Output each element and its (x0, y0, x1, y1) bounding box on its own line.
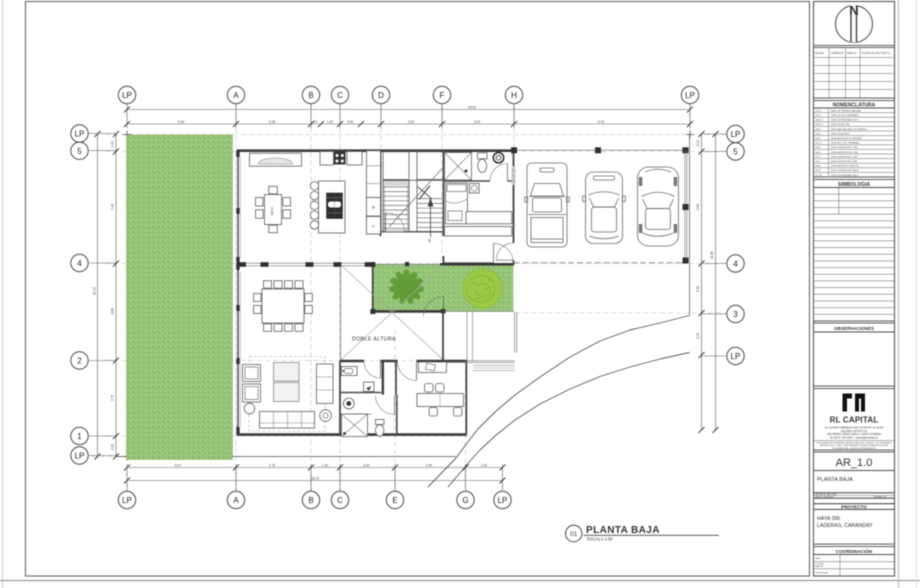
svg-text:MESA: MESA (270, 207, 274, 216)
svg-text:.70: .70 (313, 120, 318, 124)
svg-text:LP: LP (498, 496, 508, 505)
svg-text:A: A (233, 496, 239, 505)
svg-text:1: 1 (77, 432, 82, 441)
svg-text:11.80: 11.80 (710, 251, 714, 259)
svg-text:PLANTA BAJA: PLANTA BAJA (817, 477, 853, 483)
svg-text:6.80: 6.80 (111, 308, 115, 314)
svg-text:H: H (511, 91, 517, 100)
svg-text:5.43: 5.43 (178, 120, 184, 124)
svg-text:1.40: 1.40 (327, 120, 333, 124)
svg-text:NIVEL NATURAL REAL DE TERRENO: NIVEL NATURAL REAL DE TERRENO (831, 128, 867, 131)
svg-text:C: C (337, 496, 343, 505)
svg-text:COORDINACIÓN: COORDINACIÓN (836, 547, 873, 554)
svg-text:3.05: 3.05 (363, 463, 369, 467)
svg-text:LP: LP (685, 91, 695, 100)
svg-text:DIBUJO: DIBUJO (847, 51, 857, 55)
svg-text:0.92: 0.92 (696, 140, 700, 146)
svg-text:5.40: 5.40 (111, 204, 115, 210)
svg-text:28.04: 28.04 (468, 105, 476, 109)
svg-text:1.00: 1.00 (111, 444, 115, 450)
svg-text:B: B (308, 496, 313, 505)
svg-text:NIVEL INTERIOR DE PISETA: NIVEL INTERIOR DE PISETA (831, 169, 859, 172)
svg-text:N.A.L.: N.A.L. (816, 146, 822, 149)
svg-text:NIVEL DETERMINADO ALTO: NIVEL DETERMINADO ALTO (831, 119, 859, 122)
svg-text:V.B.L.: V.B.L. (816, 161, 822, 163)
svg-text:5.47: 5.47 (175, 463, 181, 467)
svg-text:NIVEL DE AZOTEA: NIVEL DE AZOTEA (831, 123, 850, 126)
svg-text:4.05: 4.05 (347, 120, 353, 124)
svg-text:NIVEL DE ACCESO: NIVEL DE ACCESO (831, 132, 850, 135)
svg-text:PLANO DE PROYECTO: PLANO DE PROYECTO (862, 51, 890, 55)
svg-text:A.A.B.: A.A.B. (816, 165, 822, 168)
svg-text:N: N (849, 3, 858, 18)
svg-text:5: 5 (733, 148, 738, 157)
svg-text:M.B.T.: M.B.T. (816, 129, 822, 131)
svg-text:E: E (392, 496, 397, 505)
svg-text:2.50: 2.50 (408, 120, 414, 124)
svg-text:N.C.L.: N.C.L. (816, 156, 822, 158)
svg-text:NIVEL DE PISO TERMINADO: NIVEL DE PISO TERMINADO (831, 114, 859, 117)
svg-text:6.76: 6.76 (598, 120, 604, 124)
svg-text:S: S (428, 238, 431, 243)
svg-text:LP: LP (122, 91, 132, 100)
svg-text:PROPIEDAD: PROPIEDAD (815, 572, 828, 575)
svg-text:DOBLE ALTURA: DOBLE ALTURA (352, 337, 396, 343)
svg-text:0.92: 0.92 (111, 141, 115, 147)
svg-text:REPRODUCIDO TOTAL O PARCIALMEN: REPRODUCIDO TOTAL O PARCIALMENTE SIN AUT… (820, 444, 889, 447)
svg-text:N.P.T.1: N.P.T.1 (816, 143, 823, 145)
svg-text:G: G (462, 496, 468, 505)
svg-text:NIVEL ANTERIOR DE TERRENO: NIVEL ANTERIOR DE TERRENO (831, 137, 863, 140)
svg-text:NIVEL DETERMINADO ALTO: NIVEL DETERMINADO ALTO (831, 174, 859, 177)
svg-text:NIVEL DE TERRENO NATURAL: NIVEL DE TERRENO NATURAL (831, 109, 862, 112)
svg-text:F: F (440, 91, 445, 100)
svg-text:JEFE: JEFE (815, 558, 821, 560)
svg-text:SIMBOLOGIA: SIMBOLOGIA (838, 182, 871, 188)
svg-text:HAYA 396: HAYA 396 (817, 516, 840, 522)
svg-text:5.60: 5.60 (696, 204, 700, 210)
svg-text:PROYECTO: AR 1.0380: PROYECTO: AR 1.0380 (815, 493, 838, 496)
svg-text:ESTE PLANO ES PROPIEDAD INTELE: ESTE PLANO ES PROPIEDAD INTELECTUAL DE R… (817, 442, 892, 445)
svg-text:LP: LP (731, 130, 741, 139)
svg-text:3: 3 (733, 310, 738, 319)
svg-text:PROYECTO: PROYECTO (841, 505, 867, 510)
svg-text:10.10: 10.10 (93, 287, 97, 295)
svg-text:DE LA EMPRESA - DERECHOS RESER: DE LA EMPRESA - DERECHOS RESERVADOS (832, 447, 876, 450)
svg-text:ESCALA 1:50: ESCALA 1:50 (587, 537, 613, 542)
svg-text:RL CAPITAL: RL CAPITAL (830, 416, 879, 425)
svg-text:NIVEL ALTO DEL TERMINADO: NIVEL ALTO DEL TERMINADO (831, 142, 861, 145)
svg-text:NADOR: NADOR (815, 565, 823, 568)
svg-text:LP: LP (731, 352, 741, 361)
svg-text:2.45: 2.45 (269, 120, 275, 124)
svg-text:5: 5 (77, 147, 82, 156)
svg-text:N.T.N.: N.T.N. (816, 110, 822, 112)
svg-text:N.P.T.: N.P.T. (816, 115, 822, 117)
svg-text:A.N.T.: A.N.T. (816, 169, 822, 172)
svg-text:AR_1.0: AR_1.0 (836, 457, 873, 469)
svg-text:B: B (308, 91, 313, 100)
svg-text:2.90: 2.90 (426, 463, 432, 467)
svg-text:N.A.J.: N.A.J. (816, 151, 822, 154)
svg-text:01: 01 (570, 531, 578, 538)
svg-text:2.75: 2.75 (269, 463, 275, 467)
svg-text:18.75: 18.75 (311, 476, 319, 480)
svg-text:2.25: 2.25 (696, 333, 700, 339)
svg-text:A.L.PF.: A.L.PF. (816, 174, 823, 177)
svg-text:B.A.J.: B.A.J. (816, 132, 822, 135)
svg-text:D: D (378, 91, 384, 100)
svg-text:NIVEL INTERIOR DE LOSA: NIVEL INTERIOR DE LOSA (831, 155, 858, 158)
svg-text:OBSERVACIONES: OBSERVACIONES (834, 326, 874, 331)
svg-text:C: C (337, 91, 343, 100)
svg-text:NIVEL ANTERIOR DE ALETA: NIVEL ANTERIOR DE ALETA (831, 165, 859, 168)
svg-text:4: 4 (733, 260, 738, 269)
svg-text:NIVEL ANTERIOR DE LOSA: NIVEL ANTERIOR DE LOSA (831, 151, 858, 154)
svg-text:V.A.B.-2: V.A.B.-2 (816, 123, 824, 126)
svg-text:A: A (233, 91, 239, 100)
svg-text:CORRIGIO: CORRIGIO (831, 51, 844, 55)
svg-text:LP: LP (75, 452, 85, 461)
svg-text:LADERAS, CARANDAY: LADERAS, CARANDAY (817, 523, 873, 529)
svg-text:NIVEL INTERIOR DE LOSA: NIVEL INTERIOR DE LOSA (831, 146, 858, 149)
svg-text:C: C (372, 224, 375, 229)
svg-text:A.B.T.: A.B.T. (816, 137, 822, 140)
svg-text:3.20: 3.20 (474, 120, 480, 124)
svg-text:1.93: 1.93 (481, 463, 487, 467)
svg-text:V.A.B.-1: V.A.B.-1 (816, 119, 824, 122)
svg-text:LP: LP (75, 130, 85, 139)
svg-text:NL 66278 - MX 64937 - rlcapita: NL 66278 - MX 64937 - rlcapital@rlcapita… (830, 436, 879, 439)
svg-text:3.30: 3.30 (696, 286, 700, 292)
svg-text:PLANTA BAJA: PLANTA BAJA (586, 525, 660, 536)
svg-text:NIVEL INTERIOR DE LOSA: NIVEL INTERIOR DE LOSA (831, 160, 858, 163)
svg-text:1.40: 1.40 (322, 463, 328, 467)
svg-text:NOMENCLATURA: NOMENCLATURA (833, 102, 876, 108)
svg-text:4: 4 (77, 259, 82, 268)
svg-text:B: B (372, 205, 375, 210)
svg-text:3.75: 3.75 (111, 395, 115, 401)
svg-text:LP: LP (122, 496, 132, 505)
svg-text:FECHA: FECHA (815, 51, 824, 55)
svg-text:2: 2 (77, 357, 82, 366)
